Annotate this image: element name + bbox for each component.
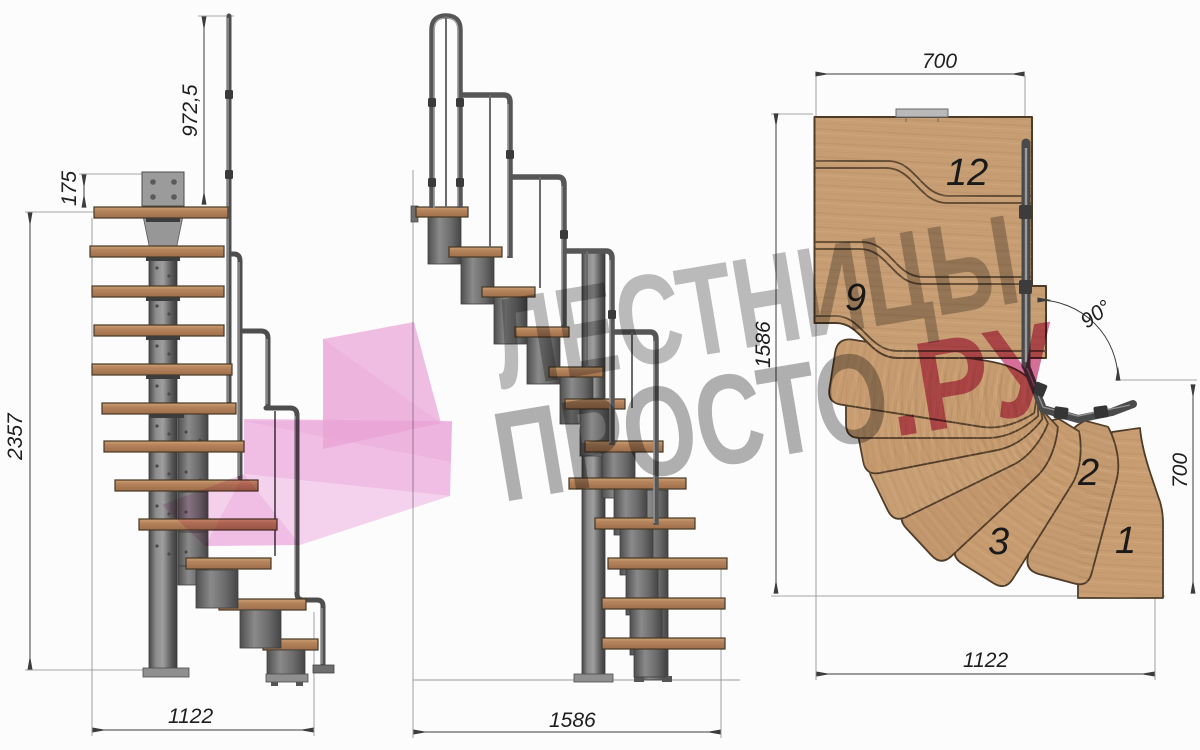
svg-text:.РУ: .РУ (875, 295, 1069, 465)
svg-text:12: 12 (946, 152, 988, 194)
svg-text:1122: 1122 (963, 649, 1008, 672)
svg-text:2357: 2357 (4, 412, 27, 461)
svg-text:2: 2 (1077, 452, 1099, 494)
svg-text:700: 700 (1169, 453, 1192, 488)
svg-text:700: 700 (922, 50, 957, 73)
svg-text:3: 3 (988, 521, 1009, 563)
svg-text:1122: 1122 (168, 705, 213, 728)
svg-text:972,5: 972,5 (179, 84, 202, 137)
svg-text:175: 175 (58, 171, 81, 206)
svg-text:1: 1 (1115, 520, 1136, 562)
svg-text:1586: 1586 (549, 709, 596, 732)
